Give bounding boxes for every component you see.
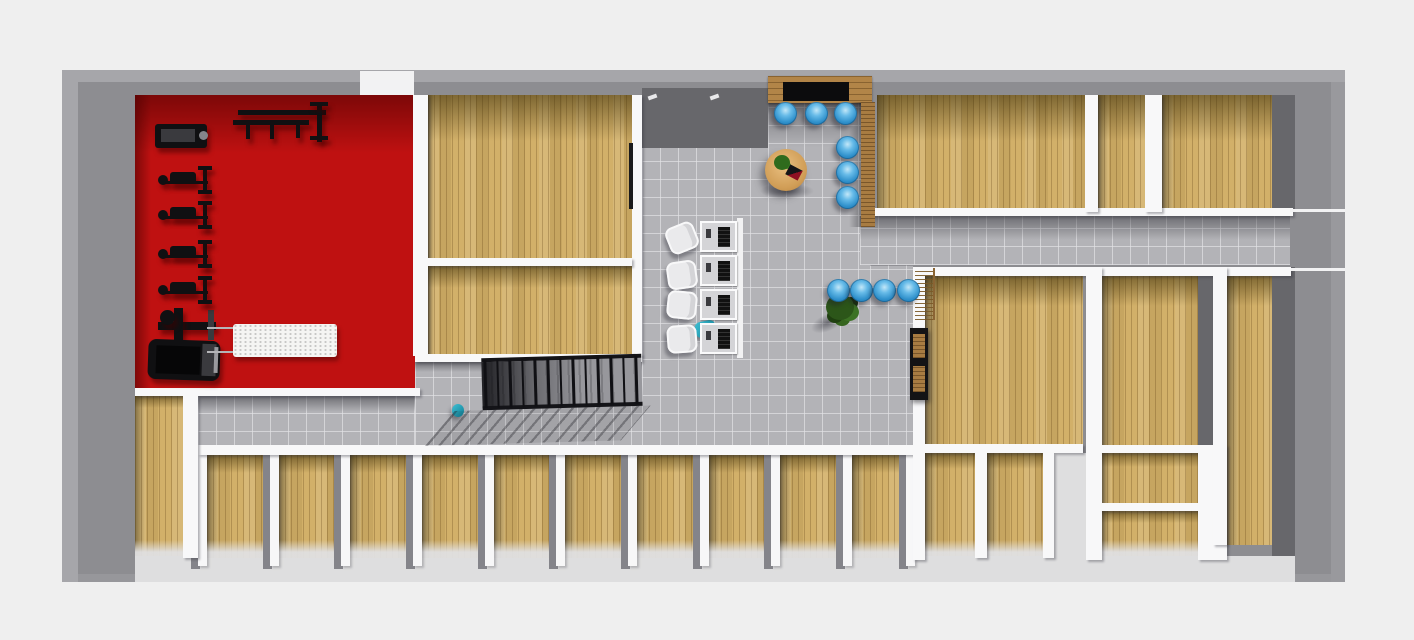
cubicle-divider-wall xyxy=(556,448,565,566)
room-topright-large-floor xyxy=(877,95,1085,212)
desk-item xyxy=(706,229,711,238)
desk-chair xyxy=(666,324,698,354)
office-shelf-board2 xyxy=(913,366,925,392)
gym-weight-bench-part xyxy=(198,225,212,229)
changing-cubicle-floor xyxy=(422,455,485,558)
gym-weight-bench-part xyxy=(198,190,212,194)
studio-room-top-floor xyxy=(428,95,632,258)
floorplan-render xyxy=(0,0,1414,640)
wall-rightmid-1 xyxy=(1101,445,1198,453)
reception-desk-frame xyxy=(737,218,743,358)
cubicle-divider-wall xyxy=(771,448,780,566)
wall-righttall-west xyxy=(1213,267,1227,545)
changing-cubicle-floor xyxy=(852,455,906,558)
staircase xyxy=(481,354,643,414)
wallface-above-lobby xyxy=(642,88,768,148)
wall-block-north xyxy=(913,267,1291,276)
store-a-floor xyxy=(925,453,975,558)
gym-table-frame-line1 xyxy=(207,327,233,329)
gym-machine-mid-vbar xyxy=(174,308,183,340)
stair-shadow xyxy=(425,406,651,446)
desk-chair xyxy=(665,259,699,291)
cubicle-divider-wall xyxy=(485,448,494,566)
cubicle-divider-wall xyxy=(413,448,422,566)
changing-cubicle-floor xyxy=(350,455,413,558)
wall-cubicles-north xyxy=(198,445,915,455)
room-topright-small-floor xyxy=(1098,95,1145,212)
wallface-right-low xyxy=(1272,267,1295,557)
gym-weight-bench-part xyxy=(198,240,212,244)
blue-tub-chair xyxy=(836,161,859,184)
wall-corridor-north-ext xyxy=(1290,209,1345,212)
gym-wallrack-leg3 xyxy=(296,122,300,138)
changing-cubicle-floor xyxy=(637,455,700,558)
wall-store-east xyxy=(1043,453,1054,558)
gym-weight-bench-part xyxy=(166,255,208,258)
room-righttall-floor xyxy=(1227,276,1272,545)
desk-item xyxy=(706,297,711,306)
room-rightmid-floor xyxy=(1101,276,1198,445)
wall-topright-2 xyxy=(1145,95,1162,212)
gym-wallrack-leg1 xyxy=(246,125,250,139)
room-rightmid-b-floor xyxy=(1101,511,1198,558)
wall-studio-mid xyxy=(428,258,632,266)
entrance-wood-sidewall xyxy=(861,102,875,227)
desk-computer xyxy=(718,227,730,247)
desk-computer xyxy=(718,261,730,281)
gym-weight-bench-part xyxy=(198,166,212,170)
blue-tub-chair xyxy=(827,279,850,302)
gym-machine-mid-knob xyxy=(160,310,175,325)
gym-weight-bench-part xyxy=(198,264,212,268)
cubicle-divider-wall xyxy=(341,448,350,566)
cubicle-divider-wall xyxy=(843,448,852,566)
gym-wallrack-cap2 xyxy=(310,136,328,140)
gym-massage-table xyxy=(233,324,337,357)
gym-weight-bench-part xyxy=(166,291,208,294)
changing-cubicle-floor xyxy=(494,455,556,558)
room-topright-corner-floor xyxy=(1162,95,1272,212)
wall-gym-east xyxy=(413,95,428,356)
cubicle-divider-wall xyxy=(628,448,637,566)
corridor-left-floor xyxy=(198,396,415,450)
gym-weight-bench-part xyxy=(198,276,212,280)
open-door-leaf xyxy=(629,143,633,209)
changing-cubicle-floor xyxy=(780,455,843,558)
gym-machine-top-knob xyxy=(199,131,208,140)
blue-tub-chair xyxy=(850,279,873,302)
gym-wallrack-cap1 xyxy=(310,102,328,106)
desk-chair xyxy=(666,290,699,321)
room-bottomleft-floor xyxy=(135,396,183,558)
gym-wallrack-bar1 xyxy=(238,110,326,115)
gym-weight-bench-part xyxy=(198,300,212,304)
desk-item xyxy=(706,263,711,272)
wall-office-south xyxy=(925,444,1083,453)
blue-tub-chair xyxy=(774,102,797,125)
wall-lobby-west xyxy=(632,95,642,356)
gym-weight-bench-part xyxy=(198,201,212,205)
room-rightmid-a-floor xyxy=(1101,453,1198,503)
gym-machine-top-inner xyxy=(161,129,195,142)
wallface-rightmid xyxy=(1198,276,1213,445)
south-walkway xyxy=(135,556,1295,582)
wall-bottomleft-east xyxy=(183,396,198,558)
cubicle-divider-wall xyxy=(270,448,279,566)
changing-cubicle-floor xyxy=(207,455,270,558)
office-right-floor xyxy=(925,276,1083,444)
studio-room-bottom-floor xyxy=(428,266,632,354)
blue-tub-chair xyxy=(836,136,859,159)
gym-treadmill-belt xyxy=(156,345,201,375)
blue-tub-chair xyxy=(805,102,828,125)
desk-computer xyxy=(718,329,730,349)
blue-tub-chair xyxy=(897,279,920,302)
gym-table-frame-line2 xyxy=(207,351,233,353)
cubicle-divider-wall xyxy=(700,448,709,566)
gym-machine-mid-cap xyxy=(208,310,214,340)
cubicle-divider-wall xyxy=(198,448,207,566)
wall-corridor-north xyxy=(865,208,1293,216)
changing-cubicle-floor xyxy=(709,455,771,558)
corridor-right-floor xyxy=(860,216,1290,265)
gym-weight-bench-part xyxy=(166,216,208,219)
wall-block-mid xyxy=(1086,267,1102,560)
blue-tub-chair xyxy=(834,102,857,125)
desk-item xyxy=(706,331,711,340)
open-floor-cut xyxy=(1054,453,1086,558)
changing-cubicle-floor xyxy=(279,455,341,558)
wallface-right-top xyxy=(1272,95,1295,212)
wall-gym-south xyxy=(135,388,420,396)
wall-store-divider xyxy=(975,453,987,558)
wall-rightmid-2 xyxy=(1101,503,1198,511)
gym-weight-bench-part xyxy=(166,181,208,184)
changing-cubicle-floor xyxy=(565,455,628,558)
store-b-floor xyxy=(987,453,1043,558)
wall-topright-1 xyxy=(1085,95,1098,212)
entrance-doormat xyxy=(783,82,849,101)
desk-computer xyxy=(718,295,730,315)
blue-tub-chair xyxy=(873,279,896,302)
blue-tub-chair xyxy=(836,186,859,209)
office-shelf-board1 xyxy=(913,334,925,358)
top-wall-door-gap xyxy=(360,71,414,96)
gym-wallrack-leg2 xyxy=(270,125,274,139)
wall-block-north-ext xyxy=(1291,268,1345,271)
